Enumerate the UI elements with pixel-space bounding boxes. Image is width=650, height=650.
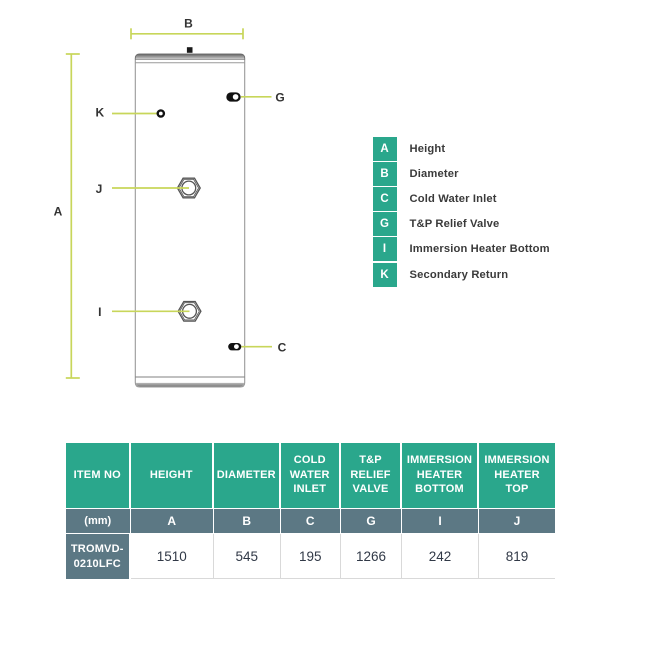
svg-text:K: K	[95, 106, 104, 120]
svg-text:B: B	[184, 17, 193, 31]
svg-text:C: C	[278, 341, 287, 355]
svg-text:G: G	[275, 90, 284, 104]
svg-text:J: J	[96, 182, 103, 196]
svg-text:A: A	[54, 205, 63, 219]
svg-text:I: I	[98, 305, 101, 319]
